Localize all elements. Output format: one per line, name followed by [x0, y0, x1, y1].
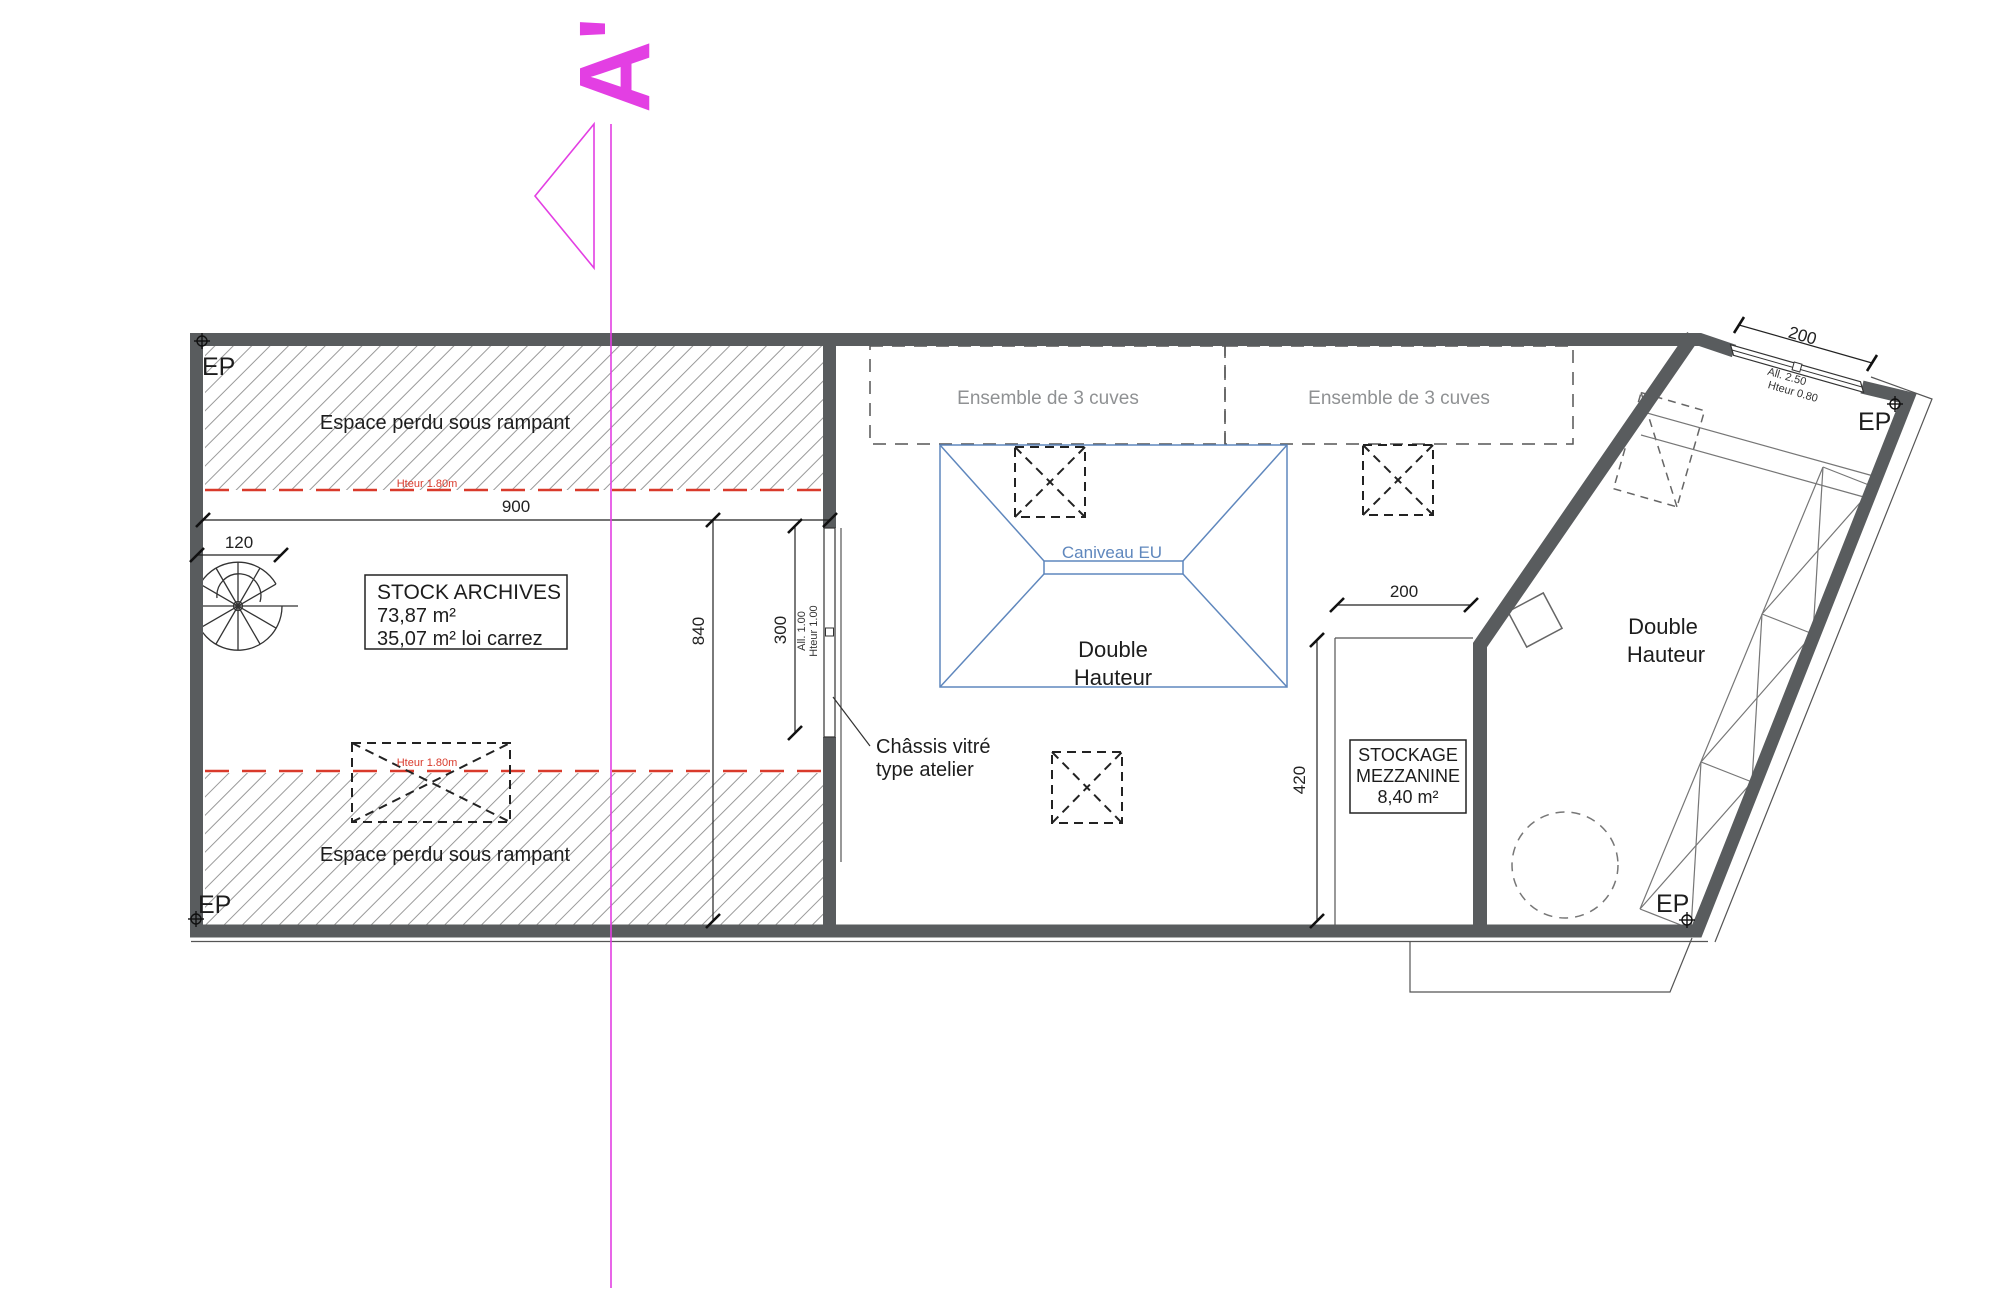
terrace-outline	[1410, 938, 1692, 992]
stock-archives-area: 73,87 m²	[377, 605, 456, 627]
height-limit-label-top: Hteur 1.80m	[397, 478, 458, 490]
dim-200-top: 200	[1786, 323, 1819, 349]
ep-label-top-right: EP	[1858, 408, 1891, 436]
x-box-cuves-right	[1363, 445, 1433, 515]
stock-archives-carrez: 35,07 m² loi carrez	[377, 628, 543, 650]
ep-label-top-left: EP	[202, 353, 235, 381]
cuves-right-label: Ensemble de 3 cuves	[1308, 388, 1490, 409]
window-left-allege: All. 1.00	[796, 611, 808, 651]
double-hauteur-mid-1: Double	[1078, 637, 1148, 662]
stockage-name1: STOCKAGE	[1358, 745, 1458, 765]
chassis-annotation: Châssis vitré type atelier	[833, 697, 990, 781]
section-label: A'	[559, 17, 671, 113]
section-line-group: A'	[535, 17, 671, 1288]
dim-900: 900	[502, 497, 530, 516]
window-left-hauteur: Hteur 1.00	[808, 605, 820, 656]
dim-120: 120	[225, 533, 253, 552]
dim-420: 420	[1290, 766, 1309, 794]
dim-300: 300	[771, 616, 790, 644]
window-left	[824, 528, 835, 737]
stock-archives-name: STOCK ARCHIVES	[377, 581, 561, 604]
stock-archives-box: STOCK ARCHIVES 73,87 m² 35,07 m² loi car…	[365, 575, 567, 650]
chassis-label-2: type atelier	[876, 759, 974, 781]
section-arrow	[535, 124, 594, 268]
height-limit-label-bottom: Hteur 1.80m	[397, 757, 458, 769]
double-hauteur-right-2: Hauteur	[1627, 642, 1705, 667]
dim-840: 840	[689, 617, 708, 645]
ep-label-bottom-right: EP	[1656, 890, 1689, 918]
x-box-mid-room	[1052, 752, 1122, 823]
espace-perdu-top-label: Espace perdu sous rampant	[320, 412, 571, 434]
double-hauteur-mid-2: Hauteur	[1074, 665, 1152, 690]
double-hauteur-right-1: Double	[1628, 614, 1698, 639]
dashed-platform	[1614, 393, 1705, 507]
stockage-mezzanine-box: STOCKAGE MEZZANINE 8,40 m²	[1350, 740, 1466, 813]
stockage-name2: MEZZANINE	[1356, 766, 1460, 786]
floor-plan-svg: 900 120 840 300 420 200 200 All. 1.00 Ht…	[0, 0, 2000, 1291]
stockage-area: 8,40 m²	[1377, 787, 1438, 807]
espace-perdu-bottom-label: Espace perdu sous rampant	[320, 844, 571, 866]
spiral-staircase	[194, 562, 298, 650]
right-stair-truss	[1640, 413, 1877, 929]
cuves-left-label: Ensemble de 3 cuves	[957, 388, 1139, 409]
dashed-circle	[1512, 812, 1618, 918]
x-box-cuves-left	[1015, 447, 1085, 517]
ep-label-bottom-left: EP	[198, 891, 231, 919]
floor-plan-page: 900 120 840 300 420 200 200 All. 1.00 Ht…	[0, 0, 2000, 1291]
dim-200-mezzanine: 200	[1390, 582, 1418, 601]
chassis-label-1: Châssis vitré	[876, 736, 990, 758]
caniveau-label: Caniveau EU	[1062, 543, 1162, 562]
